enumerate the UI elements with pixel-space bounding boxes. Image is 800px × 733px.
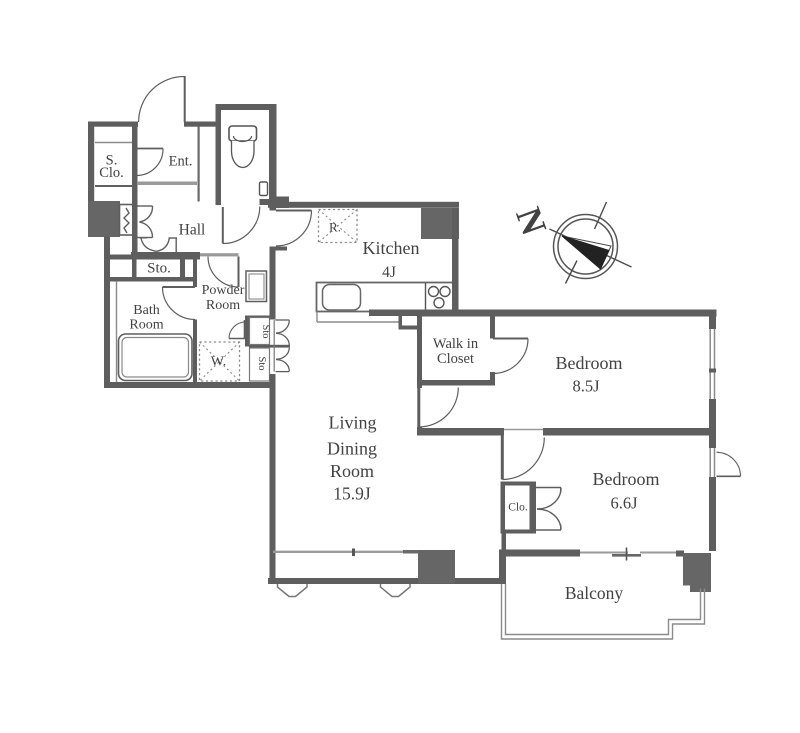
svg-text:Ent.: Ent. <box>169 154 193 170</box>
svg-text:Sto: Sto <box>260 324 271 338</box>
svg-text:Dining: Dining <box>327 439 377 459</box>
svg-text:Closet: Closet <box>437 351 474 367</box>
svg-text:Bedroom: Bedroom <box>593 469 660 489</box>
svg-text:Kitchen: Kitchen <box>363 238 420 258</box>
svg-text:W.: W. <box>211 355 226 370</box>
svg-text:Room: Room <box>129 318 163 333</box>
svg-text:4J: 4J <box>382 264 396 281</box>
svg-text:Walk in: Walk in <box>433 336 479 352</box>
svg-text:15.9J: 15.9J <box>333 484 371 504</box>
svg-text:Hall: Hall <box>179 222 206 239</box>
svg-text:Sto: Sto <box>256 356 267 370</box>
svg-text:Room: Room <box>206 298 240 313</box>
svg-text:Bedroom: Bedroom <box>556 353 623 373</box>
svg-text:R.: R. <box>329 220 341 235</box>
svg-text:Room: Room <box>330 461 374 481</box>
svg-text:Living: Living <box>329 413 377 433</box>
svg-text:Clo.: Clo. <box>508 502 528 514</box>
svg-text:6.6J: 6.6J <box>610 494 638 513</box>
svg-text:Bath: Bath <box>133 303 159 318</box>
svg-text:Balcony: Balcony <box>565 583 624 603</box>
svg-text:Clo.: Clo. <box>99 165 124 181</box>
svg-text:8.5J: 8.5J <box>572 377 600 396</box>
svg-text:Sto.: Sto. <box>147 261 171 277</box>
